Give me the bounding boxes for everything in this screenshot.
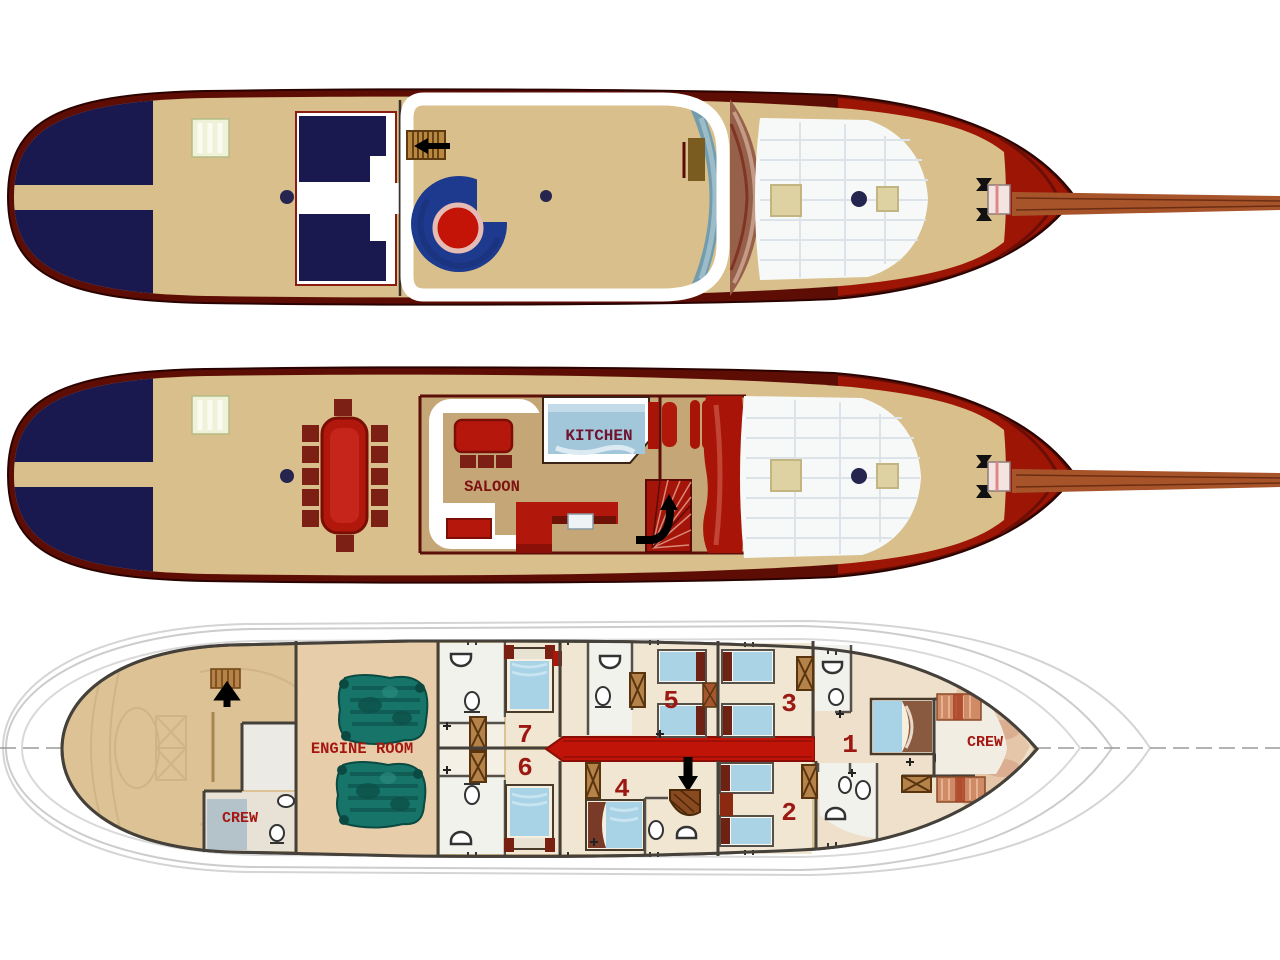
svg-text:5: 5: [663, 686, 679, 716]
svg-text:7: 7: [517, 720, 533, 750]
svg-text:1: 1: [842, 730, 858, 760]
svg-text:KITCHEN: KITCHEN: [565, 427, 632, 445]
svg-text:2: 2: [781, 798, 797, 828]
svg-text:3: 3: [781, 689, 797, 719]
svg-text:ENGINE ROOM: ENGINE ROOM: [311, 740, 413, 758]
svg-text:CREW: CREW: [222, 810, 258, 827]
svg-text:6: 6: [517, 753, 533, 783]
svg-text:CREW: CREW: [967, 734, 1003, 751]
svg-text:SALOON: SALOON: [464, 478, 520, 496]
